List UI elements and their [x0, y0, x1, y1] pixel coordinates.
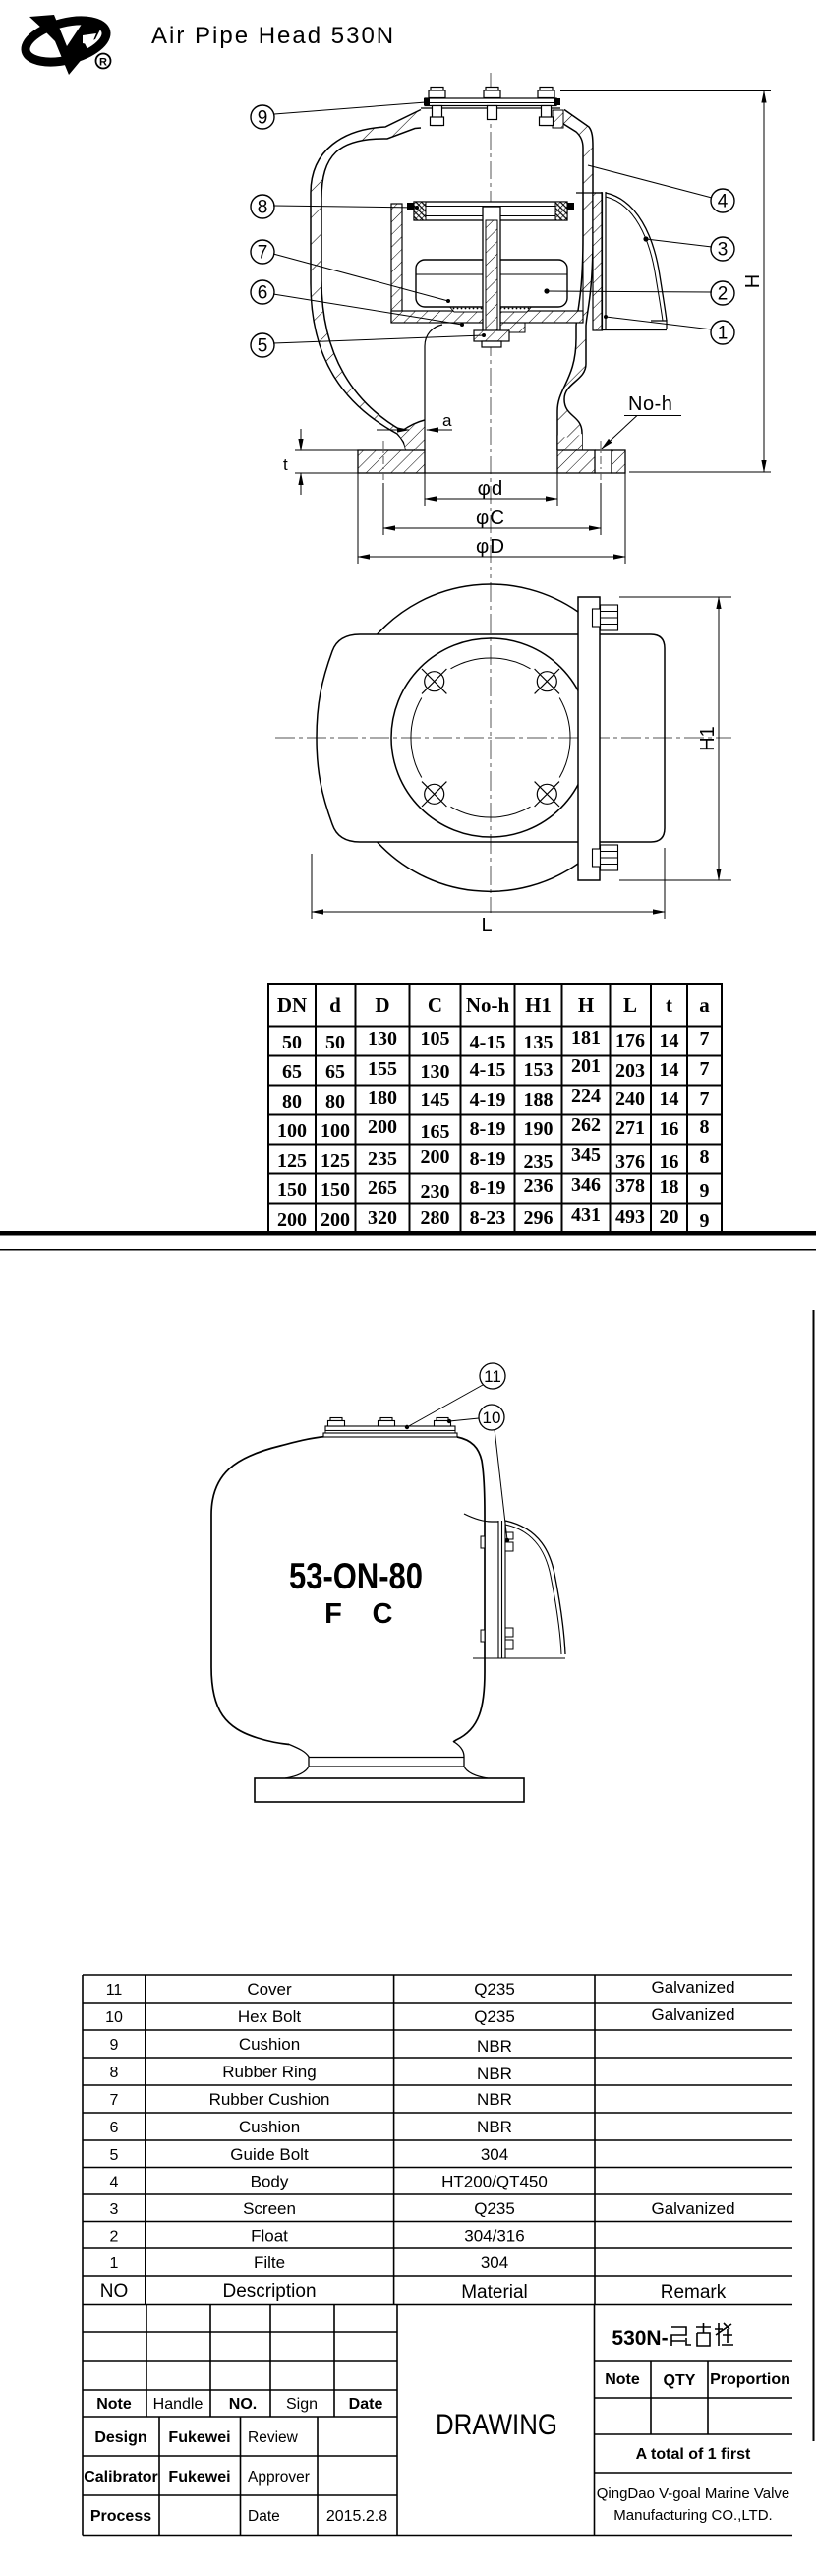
svg-text:378: 378 [615, 1175, 645, 1197]
svg-text:Rubber Ring: Rubber Ring [222, 2063, 316, 2081]
svg-text:130: 130 [421, 1061, 450, 1083]
svg-text:Cushion: Cushion [239, 2118, 300, 2136]
svg-text:Handle: Handle [153, 2396, 204, 2413]
svg-text:10: 10 [483, 1408, 501, 1427]
svg-text:145: 145 [421, 1089, 450, 1110]
svg-text:2015.2.8: 2015.2.8 [326, 2508, 387, 2525]
svg-text:NO.: NO. [229, 2396, 257, 2413]
svg-text:304: 304 [481, 2145, 508, 2164]
svg-text:8: 8 [700, 1146, 710, 1168]
svg-text:135: 135 [524, 1032, 554, 1053]
svg-text:176: 176 [615, 1030, 645, 1051]
svg-text:236: 236 [524, 1175, 554, 1197]
svg-text:14: 14 [660, 1030, 679, 1051]
svg-text:200: 200 [277, 1209, 307, 1230]
svg-text:100: 100 [277, 1120, 307, 1142]
svg-text:H1: H1 [697, 726, 719, 751]
svg-text:4-19: 4-19 [470, 1089, 506, 1110]
svg-text:Galvanized: Galvanized [651, 2199, 734, 2218]
svg-text:180: 180 [368, 1087, 397, 1108]
svg-text:8-19: 8-19 [470, 1148, 506, 1169]
svg-text:431: 431 [571, 1204, 601, 1226]
svg-text:Cushion: Cushion [239, 2035, 300, 2054]
svg-text:d: d [329, 993, 341, 1017]
svg-text:Note: Note [96, 2396, 132, 2413]
svg-text:1: 1 [718, 324, 729, 344]
svg-text:153: 153 [524, 1059, 554, 1081]
svg-text:DRAWING: DRAWING [436, 2409, 557, 2441]
svg-text:L: L [481, 915, 492, 936]
svg-text:t: t [666, 993, 672, 1017]
svg-text:Fukewei: Fukewei [168, 2429, 230, 2446]
svg-text:2: 2 [718, 284, 729, 305]
svg-text:D: D [375, 993, 389, 1017]
svg-text:C: C [373, 1598, 393, 1630]
svg-text:271: 271 [615, 1117, 645, 1139]
svg-text:Rubber Cushion: Rubber Cushion [209, 2090, 330, 2109]
svg-text:NBR: NBR [477, 2065, 512, 2083]
svg-text:Fukewei: Fukewei [168, 2469, 230, 2486]
svg-text:QTY: QTY [664, 2372, 696, 2389]
svg-text:7: 7 [700, 1028, 710, 1049]
svg-text:3: 3 [718, 240, 729, 261]
svg-text:Filte: Filte [254, 2253, 285, 2272]
svg-text:11: 11 [484, 1367, 501, 1386]
svg-text:6: 6 [110, 2120, 119, 2136]
svg-text:100: 100 [321, 1120, 350, 1142]
svg-text:5: 5 [110, 2147, 119, 2164]
svg-text:280: 280 [421, 1207, 450, 1228]
svg-text:1: 1 [110, 2255, 119, 2272]
svg-text:7: 7 [110, 2092, 119, 2109]
svg-text:224: 224 [571, 1085, 601, 1107]
svg-text:Galvanized: Galvanized [651, 2006, 734, 2024]
svg-text:296: 296 [524, 1207, 554, 1228]
svg-text:14: 14 [660, 1059, 679, 1081]
svg-text:L: L [623, 993, 637, 1017]
svg-text:DN: DN [277, 993, 307, 1017]
svg-text:F: F [324, 1598, 342, 1630]
svg-text:65: 65 [325, 1061, 345, 1083]
svg-text:376: 376 [615, 1151, 645, 1172]
svg-text:265: 265 [368, 1177, 397, 1199]
svg-text:7: 7 [258, 243, 268, 264]
svg-text:Proportion: Proportion [710, 2371, 790, 2388]
svg-text:NBR: NBR [477, 2037, 512, 2056]
svg-text:2: 2 [110, 2229, 119, 2246]
svg-text:8-19: 8-19 [470, 1177, 506, 1199]
svg-text:4-15: 4-15 [470, 1032, 506, 1053]
svg-text:14: 14 [660, 1088, 679, 1109]
svg-text:230: 230 [421, 1181, 450, 1203]
svg-text:Design: Design [94, 2429, 146, 2446]
svg-text:Q235: Q235 [474, 2199, 515, 2218]
svg-text:Float: Float [251, 2227, 288, 2246]
svg-text:H: H [578, 993, 594, 1017]
svg-text:4-15: 4-15 [470, 1059, 506, 1081]
svg-text:Material: Material [461, 2282, 528, 2303]
svg-text:Body: Body [251, 2173, 289, 2191]
svg-text:80: 80 [325, 1091, 345, 1112]
svg-text:200: 200 [321, 1209, 350, 1230]
svg-text:Guide Bolt: Guide Bolt [230, 2145, 309, 2164]
svg-text:No-h: No-h [628, 393, 672, 415]
svg-text:203: 203 [615, 1060, 645, 1082]
svg-text:5: 5 [258, 336, 268, 357]
svg-text:125: 125 [277, 1150, 307, 1171]
svg-text:11: 11 [106, 1982, 123, 1999]
svg-text:165: 165 [421, 1121, 450, 1143]
svg-text:C: C [428, 993, 442, 1017]
svg-text:304: 304 [481, 2253, 508, 2272]
svg-text:H1: H1 [525, 993, 552, 1017]
svg-text:20: 20 [660, 1206, 679, 1228]
svg-text:Sign: Sign [286, 2396, 318, 2413]
svg-text:8-23: 8-23 [470, 1207, 506, 1228]
svg-text:200: 200 [368, 1116, 397, 1138]
svg-text:Approver: Approver [248, 2469, 310, 2486]
svg-text:Q235: Q235 [474, 2007, 515, 2026]
svg-text:Calibrator: Calibrator [84, 2469, 158, 2486]
svg-text:150: 150 [277, 1179, 307, 1201]
svg-text:9: 9 [700, 1210, 710, 1231]
svg-text:Date: Date [349, 2396, 383, 2413]
svg-text:Galvanized: Galvanized [651, 1978, 734, 1997]
svg-text:346: 346 [571, 1174, 601, 1196]
svg-text:QingDao V-goal Marine Valve: QingDao V-goal Marine Valve [597, 2486, 790, 2502]
svg-text:200: 200 [421, 1146, 450, 1168]
svg-text:Remark: Remark [661, 2282, 727, 2303]
svg-text:NO: NO [100, 2281, 129, 2302]
svg-text:125: 125 [321, 1150, 350, 1171]
svg-text:6: 6 [258, 283, 268, 304]
svg-text:530N-: 530N- [612, 2327, 668, 2350]
svg-text:NBR: NBR [477, 2090, 512, 2109]
svg-text:320: 320 [368, 1207, 397, 1228]
svg-text:HT200/QT450: HT200/QT450 [441, 2173, 548, 2191]
svg-text:Screen: Screen [243, 2199, 296, 2218]
svg-text:Cover: Cover [247, 1980, 292, 1999]
svg-text:181: 181 [571, 1027, 601, 1048]
svg-text:10: 10 [105, 2009, 123, 2026]
svg-text:t: t [283, 455, 288, 474]
svg-text:16: 16 [660, 1151, 679, 1172]
svg-text:50: 50 [325, 1032, 345, 1053]
svg-text:7: 7 [700, 1058, 710, 1080]
svg-text:150: 150 [321, 1179, 350, 1201]
svg-text:235: 235 [524, 1151, 554, 1172]
svg-text:Process: Process [90, 2508, 151, 2525]
svg-text:a: a [699, 993, 710, 1017]
svg-text:Manufacturing CO.,LTD.: Manufacturing CO.,LTD. [613, 2507, 772, 2524]
svg-text:3: 3 [110, 2201, 119, 2218]
svg-text:8-19: 8-19 [470, 1118, 506, 1140]
svg-text:9: 9 [700, 1180, 710, 1202]
svg-text:201: 201 [571, 1055, 601, 1077]
svg-text:4: 4 [110, 2175, 119, 2191]
svg-text:7: 7 [700, 1088, 710, 1109]
svg-text:No-h: No-h [466, 993, 510, 1017]
svg-text:φD: φD [476, 535, 505, 558]
svg-text:9: 9 [110, 2037, 119, 2054]
svg-text:80: 80 [282, 1091, 302, 1112]
svg-text:Description: Description [222, 2281, 316, 2302]
svg-text:345: 345 [571, 1144, 601, 1166]
svg-text:Note: Note [605, 2371, 640, 2388]
svg-text:Date: Date [248, 2508, 280, 2525]
svg-text:65: 65 [282, 1061, 302, 1083]
svg-text:Review: Review [248, 2429, 299, 2446]
svg-text:53-ON-80: 53-ON-80 [289, 1556, 423, 1596]
svg-text:H: H [742, 274, 764, 288]
svg-text:R: R [99, 57, 107, 69]
svg-text:NBR: NBR [477, 2118, 512, 2136]
svg-text:188: 188 [524, 1089, 554, 1110]
svg-text:8: 8 [258, 198, 268, 218]
svg-text:4: 4 [718, 192, 729, 212]
svg-text:8: 8 [110, 2065, 119, 2081]
svg-text:18: 18 [660, 1176, 679, 1198]
svg-text:a: a [442, 411, 452, 430]
svg-text:262: 262 [571, 1114, 601, 1136]
svg-text:235: 235 [368, 1148, 397, 1169]
svg-text:105: 105 [421, 1028, 450, 1049]
svg-text:φC: φC [476, 507, 505, 529]
svg-text:240: 240 [615, 1088, 645, 1109]
svg-text:190: 190 [524, 1118, 554, 1140]
svg-text:A total of 1 first: A total of 1 first [636, 2446, 751, 2463]
svg-text:16: 16 [660, 1118, 679, 1140]
svg-text:Q235: Q235 [474, 1980, 515, 1999]
svg-text:φd: φd [478, 477, 504, 500]
svg-text:493: 493 [615, 1206, 645, 1228]
svg-text:50: 50 [282, 1032, 302, 1053]
svg-text:155: 155 [368, 1058, 397, 1080]
svg-text:Hex Bolt: Hex Bolt [238, 2007, 302, 2026]
svg-text:8: 8 [700, 1116, 710, 1138]
svg-text:304/316: 304/316 [464, 2227, 524, 2246]
svg-text:Air Pipe Head 530N: Air Pipe Head 530N [151, 23, 395, 49]
svg-text:130: 130 [368, 1028, 397, 1049]
svg-text:9: 9 [258, 108, 268, 129]
